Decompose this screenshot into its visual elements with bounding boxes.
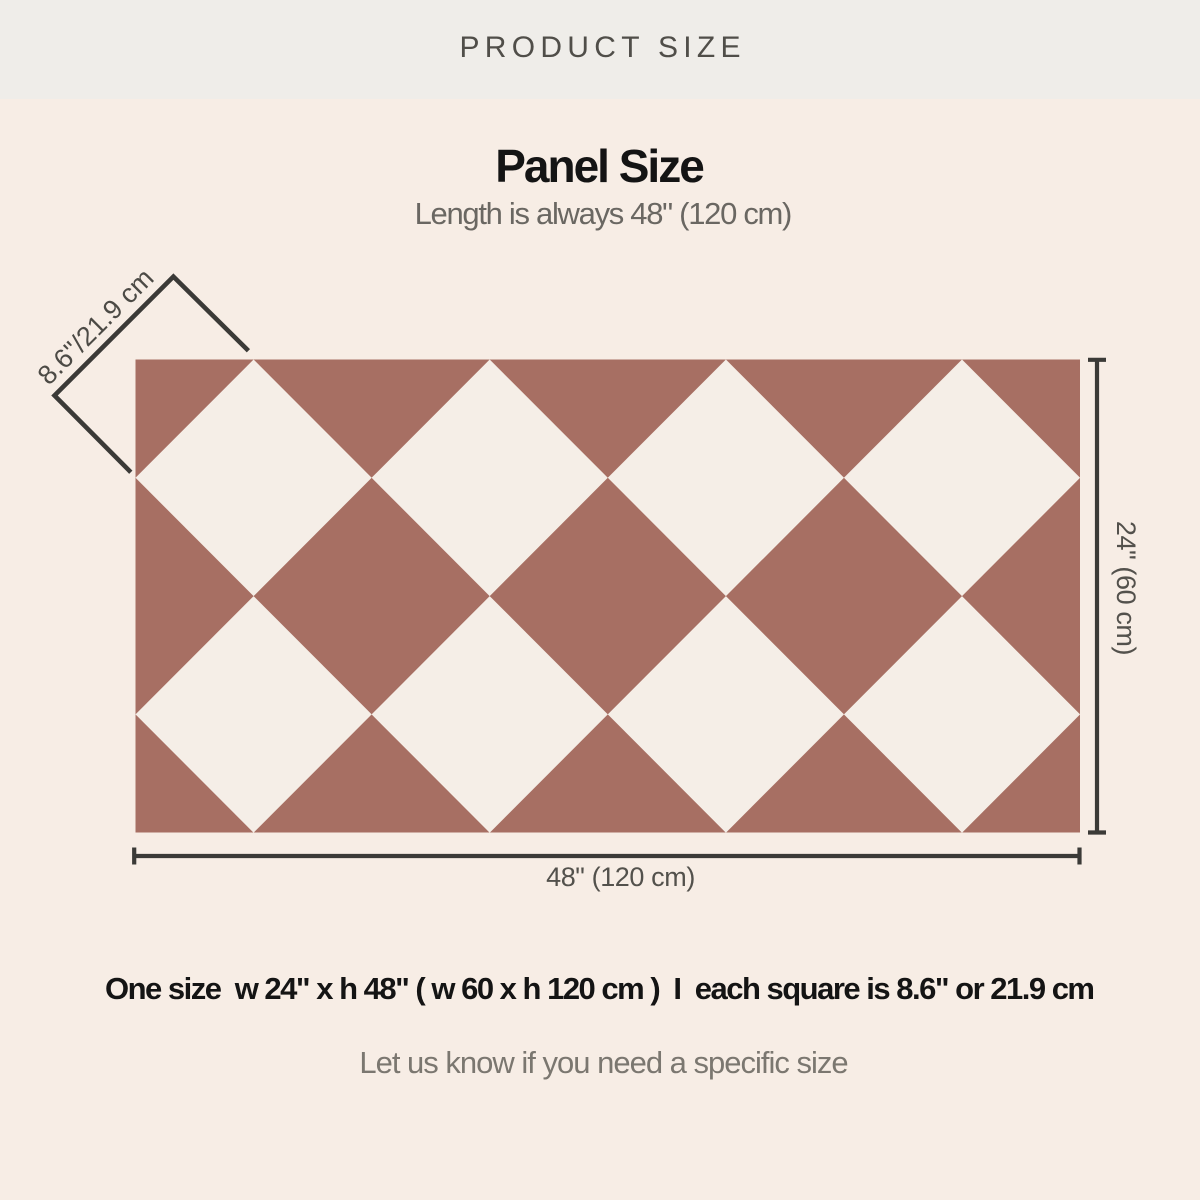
svg-text:48" (120 cm): 48" (120 cm) <box>546 862 695 892</box>
svg-text:24" (60 cm): 24" (60 cm) <box>1111 521 1141 655</box>
